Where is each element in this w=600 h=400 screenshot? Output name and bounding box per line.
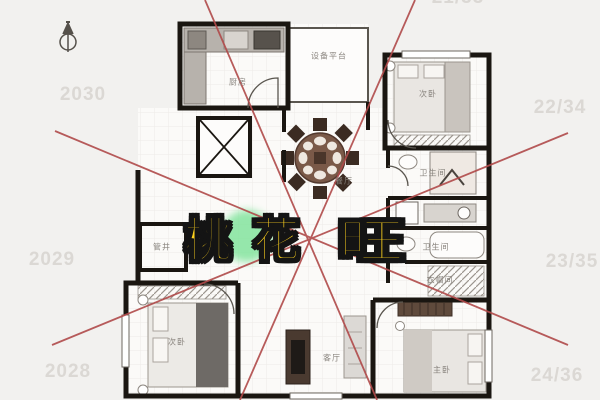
year-label-24-36: 24/36	[531, 365, 584, 387]
room-label-pipe-shaft: 管井	[153, 242, 171, 253]
year-label-21-33: 21/33	[432, 0, 485, 9]
year-label-2028: 2028	[45, 361, 91, 383]
equipment-platform	[288, 28, 368, 102]
room-label-cloakroom: 衣帽间	[427, 275, 454, 286]
year-label-23-35: 23/35	[546, 251, 599, 273]
room-label-living: 客厅	[323, 353, 341, 364]
dining-table	[281, 118, 359, 199]
title-char-tao: 桃	[185, 202, 232, 271]
room-label-bathroom-top: 卫生间	[420, 168, 447, 179]
room-label-kitchen: 厨房	[229, 77, 247, 88]
year-label-22-34: 22/34	[534, 97, 587, 119]
room-label-bedroom-bottom: 次卧	[168, 337, 186, 348]
year-label-2030: 2030	[60, 84, 106, 106]
year-label-2029: 2029	[29, 249, 75, 271]
title-char-wang: 旺	[338, 203, 404, 272]
room-label-equipment: 设备平台	[311, 51, 347, 62]
title-char-hua: 花	[253, 202, 300, 271]
room-label-bathroom-mid: 卫生间	[423, 242, 450, 253]
room-label-dining: 餐厅	[335, 176, 353, 187]
elevator-icon	[198, 118, 250, 176]
room-label-master: 主卧	[433, 365, 451, 376]
laundry-niche	[396, 202, 476, 224]
screenshot-root: 厨房 设备平台 次卧 餐厅 卫生间 管井 卫生间 衣帽间 次卧 客厅 主卧 20…	[0, 0, 600, 400]
floor-plan	[0, 0, 600, 400]
north-arrow-icon	[60, 22, 76, 52]
room-label-bedroom-top: 次卧	[419, 89, 437, 100]
